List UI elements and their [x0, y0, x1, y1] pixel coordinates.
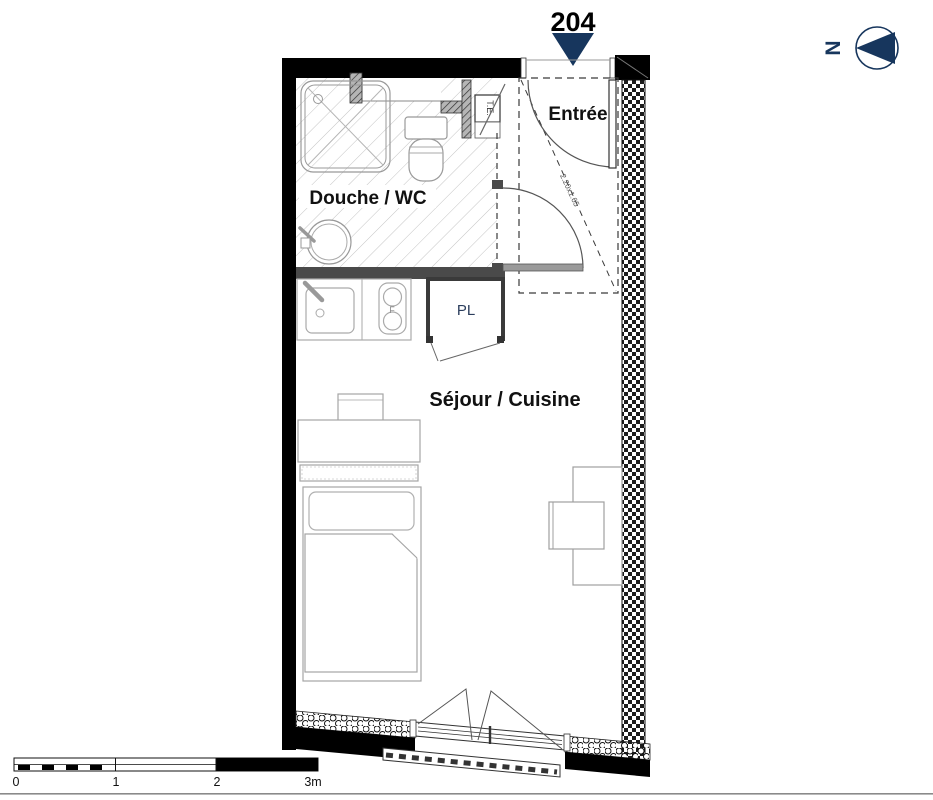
- exterior-wall-left: [282, 58, 296, 750]
- headboard-shelf: [298, 420, 420, 462]
- closet: PL: [426, 279, 504, 361]
- scale-tick-label: 0: [13, 775, 20, 789]
- closet-jamb: [497, 336, 504, 343]
- bathroom-label: Douche / WC: [309, 188, 426, 209]
- wall-stub: [350, 73, 362, 103]
- wall-stub: [441, 101, 462, 113]
- scale-stripe: [18, 765, 30, 770]
- closet-door-leaf: [431, 343, 438, 361]
- floor-plan-page: 204 N: [0, 0, 933, 800]
- entrance-door-leaf: [609, 80, 616, 168]
- entrance-jamb-right: [610, 58, 615, 78]
- scale-stripe: [42, 765, 54, 770]
- window-endcap: [564, 734, 570, 751]
- closet-label: PL: [457, 302, 475, 319]
- french-window: [383, 689, 570, 777]
- window-endcap: [410, 720, 416, 737]
- balcony-railing: [383, 748, 560, 777]
- entrance-label: Entrée: [548, 104, 607, 125]
- toilet-bowl: [409, 139, 443, 181]
- compass-needle-icon: [856, 32, 895, 64]
- scale-tick-label: 1: [113, 775, 120, 789]
- living-kitchen-label: Séjour / Cuisine: [429, 389, 580, 411]
- north-label: N: [822, 40, 845, 55]
- bed-frame: [303, 487, 421, 681]
- chair: [549, 502, 604, 549]
- entrance-zone-dimension-label: 2.20x1.65: [558, 172, 581, 208]
- entrance-jamb-left: [521, 58, 526, 78]
- toilet-tank: [405, 117, 447, 139]
- scale-stripe: [90, 765, 102, 770]
- scale-solid-segment: [216, 758, 318, 771]
- exterior-wall-right-insulated: [622, 80, 645, 762]
- closet-jamb: [426, 336, 433, 343]
- scale-stripe: [66, 765, 78, 770]
- north-compass: N: [822, 27, 898, 69]
- door-jamb: [492, 263, 503, 273]
- desk-group: [549, 467, 622, 585]
- bed-group: [298, 394, 421, 681]
- cooktop-mark: F: [389, 305, 395, 315]
- unit-number-label: 204: [550, 7, 595, 37]
- kitchen-counter: F: [297, 279, 411, 340]
- door-jamb: [492, 180, 503, 189]
- exterior-wall-top: [282, 58, 521, 78]
- unit-marker-triangle-icon: [552, 33, 594, 66]
- basin-tap-base: [301, 238, 310, 248]
- page-bottom-border: [0, 793, 933, 795]
- toilet: [405, 117, 447, 181]
- electrical-panel-box-lower: [475, 122, 500, 138]
- closet-door-leaf: [440, 343, 500, 361]
- scale-tick-label: 2: [214, 775, 221, 789]
- bathroom-door-leaf: [503, 264, 583, 271]
- scale-bar: 0 1 2 3m: [13, 758, 322, 789]
- scale-tick-label: 3m: [304, 775, 321, 789]
- floor-plan-drawing: 204 N: [0, 0, 933, 800]
- wall-stub: [462, 80, 471, 138]
